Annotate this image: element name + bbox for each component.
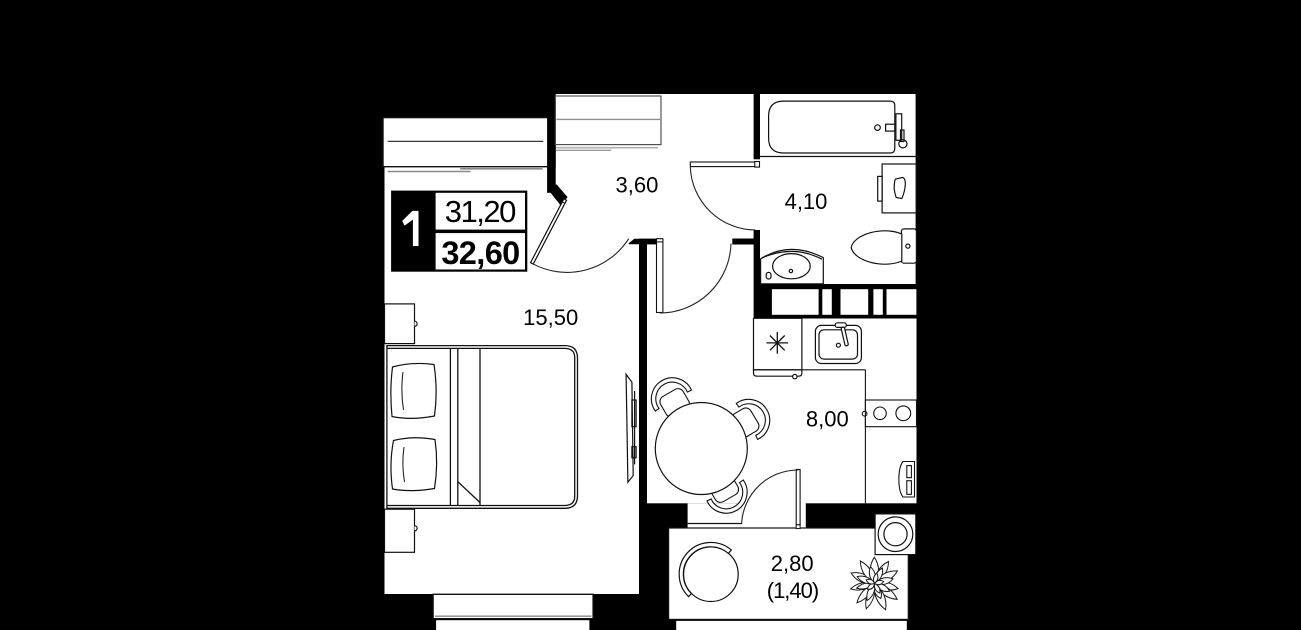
svg-text:(1,40): (1,40)	[767, 578, 818, 603]
svg-text:4,10: 4,10	[785, 189, 828, 214]
svg-text:32,60: 32,60	[441, 235, 519, 271]
svg-text:2,80: 2,80	[771, 551, 814, 576]
svg-text:3,60: 3,60	[615, 173, 658, 198]
svg-text:31,20: 31,20	[445, 194, 516, 229]
svg-text:8,00: 8,00	[806, 407, 849, 432]
svg-text:15,50: 15,50	[523, 305, 578, 330]
